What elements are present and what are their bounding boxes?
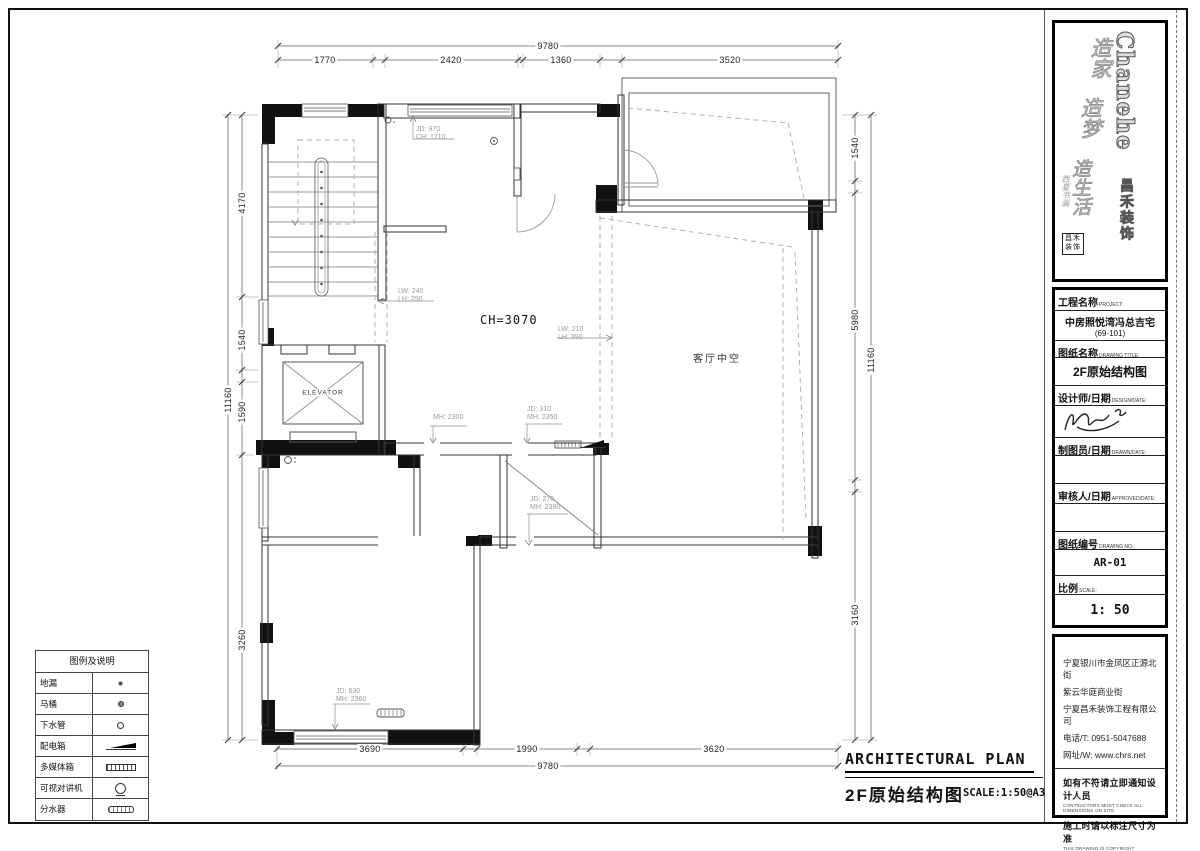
company-website: 网址/W: www.chrs.net <box>1063 749 1157 761</box>
annotation-opening-2: JD: 310MH: 2350 <box>527 406 557 422</box>
sheet-border <box>8 8 1188 824</box>
plan-title-en: ARCHITECTURAL PLAN <box>845 750 1034 773</box>
dim-label: 2420 <box>438 55 463 65</box>
copyright-note-en: THIS DRAWING IS COPYRIGHT <box>1063 846 1157 851</box>
drawing-number: AR-01 <box>1055 550 1165 576</box>
legend-row: 下水管 <box>36 715 148 736</box>
dim-label: 3620 <box>701 744 726 754</box>
company-name: 宁夏昌禾装饰工程有限公司 <box>1063 703 1157 727</box>
dim-label: 1990 <box>514 744 539 754</box>
annotation-beam-left: LW: 240LH: 290 <box>398 288 423 304</box>
brand-logo-en: Chanehe <box>1111 31 1138 151</box>
plan-title-underline <box>845 777 1043 778</box>
company-phone: 电话/T: 0951-5047688 <box>1063 732 1157 744</box>
titleblock-separator-line <box>1044 10 1045 822</box>
legend-row: 地漏 <box>36 673 148 694</box>
dim-label: 3160 <box>850 602 860 627</box>
dim-label: 1590 <box>237 399 247 424</box>
annotation-opening-1: MH: 2300 <box>433 414 463 422</box>
company-address-2: 紫云华庭商业街 <box>1063 686 1157 698</box>
drafter-empty-cell <box>1055 456 1165 484</box>
designer-signature <box>1055 406 1165 438</box>
living-room-void-label: 客厅中空 <box>693 350 741 365</box>
multimedia-box-icon <box>106 764 136 771</box>
dim-label: 1770 <box>312 55 337 65</box>
checker-label-row: 审核人/日期APPROVED/DATE: <box>1055 484 1165 504</box>
annotation-window-height: JD: 970CH: 1710 <box>416 126 446 142</box>
drawing-title-label-row: 图纸名称DRAWING TITLE: <box>1055 341 1165 358</box>
calligraphy-slogan: 造家 <box>1085 37 1115 79</box>
checker-empty-cell <box>1055 504 1165 532</box>
company-info-block: 宁夏银川市金凤区正源北街 紫云华庭商业街 宁夏昌禾装饰工程有限公司 电话/T: … <box>1052 634 1168 818</box>
scale-label-row: 比例SCALE: <box>1055 576 1165 595</box>
dim-label: 11160 <box>866 345 876 374</box>
signature-scribble <box>1055 406 1163 436</box>
company-address-1: 宁夏银川市金凤区正源北街 <box>1063 657 1157 681</box>
dim-label: 1360 <box>548 55 573 65</box>
annotation-opening-3: JD: 270MH: 2380 <box>530 496 560 512</box>
dim-label: 9780 <box>535 761 560 771</box>
dim-label: 3260 <box>237 627 247 652</box>
legend-label: 地漏 <box>36 673 93 693</box>
dim-label: 5980 <box>850 307 860 332</box>
dim-label: 3520 <box>717 55 742 65</box>
project-name-row: 中房照悦湾冯总吉宅 (69-101) <box>1055 311 1165 341</box>
project-label-row: 工程名称PROJECT: <box>1055 290 1165 311</box>
legend-title: 图例及说明 <box>36 651 148 673</box>
elevator-label: ELEVATOR <box>301 390 345 397</box>
video-intercom-icon <box>115 783 126 794</box>
toilet-icon <box>118 701 124 707</box>
calligraphy-slogan: 造梦 <box>1075 97 1105 139</box>
distribution-box-icon <box>106 743 136 750</box>
copyright-note-cn: 施工时请以标注尺寸为准 <box>1063 819 1157 845</box>
water-manifold-icon <box>108 806 134 813</box>
legend-row: 可视对讲机 <box>36 778 148 799</box>
dim-label: 1540 <box>850 135 860 160</box>
site-note-en: CONTRACTORS MUST CHECK ALL DIMENSIONS ON… <box>1063 803 1157 813</box>
logo-box: Chanehe 昌禾装饰 造家 造梦 造生活 西夏书画 昌禾装饰 <box>1052 20 1168 282</box>
drafter-label-row: 制图员/日期DRAWN/DATE: <box>1055 438 1165 456</box>
project-name: 中房照悦湾冯总吉宅 <box>1055 314 1165 329</box>
ceiling-height-label: CH=3070 <box>480 313 538 327</box>
legend-label: 配电箱 <box>36 736 93 756</box>
calligraphy-slogan: 造生活 <box>1067 159 1094 216</box>
legend-row: 多媒体箱 <box>36 757 148 778</box>
legend-label: 可视对讲机 <box>36 778 93 798</box>
plan-scale: SCALE:1:50@A3 <box>963 787 1045 799</box>
calligraphy-side-text: 西夏书画 <box>1060 175 1071 207</box>
legend-label: 多媒体箱 <box>36 757 93 777</box>
divider <box>1055 768 1165 769</box>
legend-label: 下水管 <box>36 715 93 735</box>
legend-label: 马桶 <box>36 694 93 714</box>
drain-pipe-icon <box>117 722 124 729</box>
scale-value: 1: 50 <box>1055 595 1165 625</box>
dim-label: 11160 <box>223 385 233 414</box>
designer-label-row: 设计师/日期DESIGN/DATE: <box>1055 386 1165 406</box>
fold-dashed-line <box>1176 10 1177 822</box>
dim-label: 9780 <box>535 41 560 51</box>
annotation-opening-4: JD: 630MH: 2360 <box>336 688 366 704</box>
brand-logo-cn: 昌禾装饰 <box>1117 178 1137 242</box>
project-unit: (69-101) <box>1055 329 1165 338</box>
dim-label: 1540 <box>237 327 247 352</box>
drawing-no-label-row: 图纸编号DRAWING NO.: <box>1055 532 1165 550</box>
dim-label: 3690 <box>357 744 382 754</box>
floor-drain-icon <box>119 682 122 685</box>
drawing-title: 2F原始结构图 <box>1055 358 1165 386</box>
dim-label: 4170 <box>237 190 247 215</box>
legend-table: 图例及说明 地漏 马桶 下水管 配电箱 多媒体箱 可视对讲机 分水器 <box>35 650 149 821</box>
company-seal: 昌禾装饰 <box>1062 233 1084 255</box>
site-note-cn: 如有不符请立即通知设计人员 <box>1063 776 1157 802</box>
title-block: 工程名称PROJECT: 中房照悦湾冯总吉宅 (69-101) 图纸名称DRAW… <box>1052 287 1168 628</box>
legend-label: 分水器 <box>36 799 93 820</box>
legend-row: 配电箱 <box>36 736 148 757</box>
plan-title-cn: 2F原始结构图 <box>845 781 964 806</box>
legend-row: 分水器 <box>36 799 148 820</box>
legend-row: 马桶 <box>36 694 148 715</box>
annotation-beam-right: LW: 210LH: 390 <box>558 326 583 342</box>
